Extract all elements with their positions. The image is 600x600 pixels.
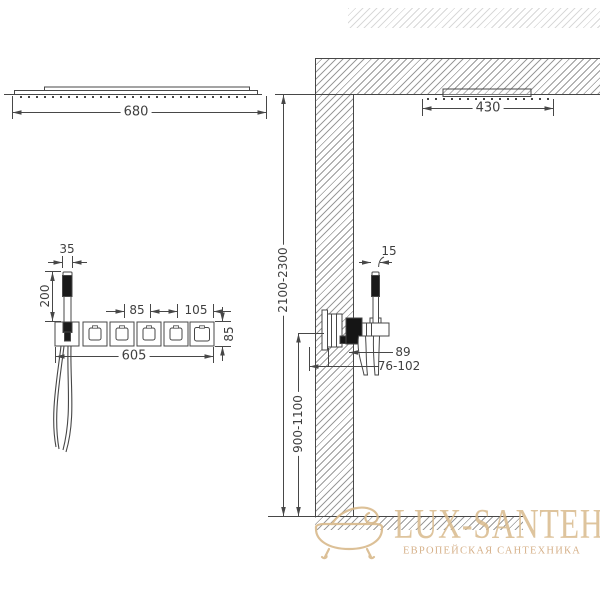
dim-label-ceiling-shower-width: 430 [473, 102, 504, 115]
installation-drawing: 680 430 35 200 85 105 85 605 15 89 76-10… [0, 0, 600, 600]
handshower-side-view [372, 272, 380, 323]
dim-label-end-module-width: 105 [182, 304, 211, 316]
overhead-shower-front-view [15, 87, 258, 95]
dim-label-overhead-width: 680 [121, 106, 152, 119]
dim-label-handshower-length: 200 [39, 282, 51, 311]
handshower-hose [54, 346, 72, 452]
watermark-tagline-text: ЕВРОПЕЙСКАЯ САНТЕХНИКА [403, 546, 581, 557]
bathtub-icon [312, 497, 404, 569]
dim-label-panel-height: 85 [223, 323, 235, 344]
overhead-shower-nozzles-front [20, 96, 252, 99]
handshower-front-view [63, 272, 73, 341]
overhead-shower-side-view [443, 89, 531, 97]
dim-label-mounting-depth-range: 76-102 [378, 360, 421, 372]
dimension-76-102 [310, 347, 380, 371]
control-panel-front-view [55, 322, 214, 346]
dim-label-module-spacing: 85 [126, 304, 147, 316]
dim-label-valve-height-range: 900-1100 [292, 392, 304, 456]
dim-label-ceiling-height-range: 2100-2300 [277, 244, 289, 315]
dim-label-panel-length: 605 [119, 350, 150, 363]
dim-label-handshower-bracket-width: 35 [56, 243, 77, 255]
dim-label-handshower-side-depth: 15 [381, 245, 396, 257]
watermark-brand-text: LUX-SANTEH [394, 504, 600, 546]
dim-label-valve-body-width: 89 [395, 346, 410, 358]
